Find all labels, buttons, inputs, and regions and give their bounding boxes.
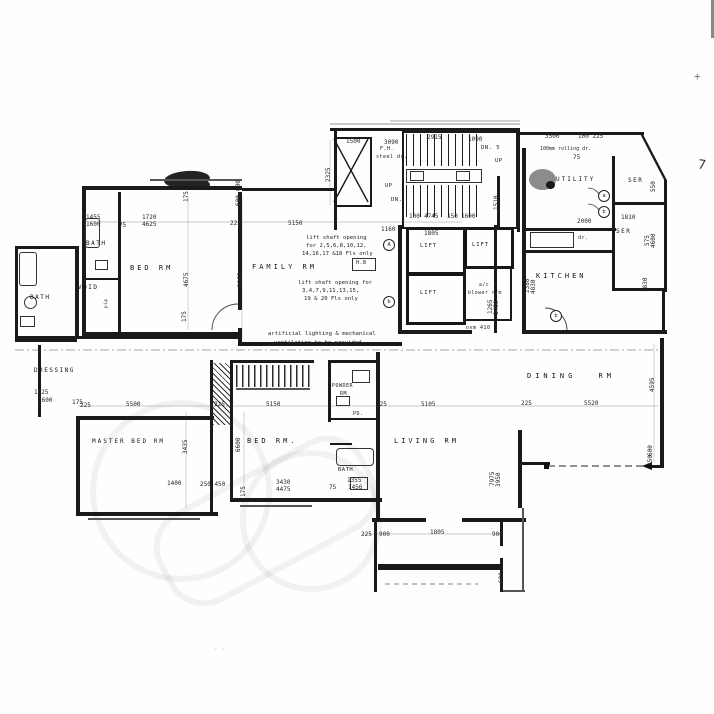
- lift-note-1-line1: lift shaft opening: [306, 235, 367, 241]
- door-tag-b: b: [550, 310, 562, 322]
- room-label-master-bed-rm: MASTER BED RM: [92, 438, 165, 445]
- dimension: 1400: [167, 480, 181, 487]
- dimension: 175: [72, 399, 83, 406]
- wall: [522, 148, 526, 332]
- dimension: 1805: [424, 230, 438, 237]
- wall: [526, 250, 614, 253]
- dimension: 5500: [126, 401, 140, 408]
- room-label-void: VOID: [78, 284, 98, 291]
- wall: [664, 180, 667, 292]
- room-label-ser-lower: SER: [616, 228, 631, 235]
- lift-note-2-line2: 3,4,7,9,11,13,15,: [302, 288, 359, 294]
- dimension: 150: [447, 213, 458, 220]
- dimension: 3955: [237, 273, 244, 287]
- door-tag-b: b: [598, 206, 610, 218]
- dimension: 150: [647, 455, 654, 466]
- basin-fixture: [336, 396, 350, 406]
- door-tag-a: a: [598, 190, 610, 202]
- dimension: 175: [183, 191, 190, 202]
- wall: [15, 246, 18, 342]
- pipe-label: pip: [104, 298, 109, 308]
- dimension: 1720: [142, 214, 156, 221]
- dimension: 1725: [34, 389, 48, 396]
- wall: [522, 228, 616, 231]
- wall: [398, 330, 472, 334]
- room-label-powder-1: POWDER: [332, 383, 353, 389]
- window-line: [88, 518, 200, 520]
- dimension: 3430: [276, 479, 290, 486]
- room-label-ac-1: a/c: [479, 283, 489, 288]
- room-label-bed-rm-1: BED RM: [130, 264, 173, 272]
- wall: [612, 288, 667, 291]
- service-shaft: [334, 137, 372, 207]
- dimension: 1830: [642, 278, 649, 292]
- wall-light: [522, 508, 524, 592]
- stair-up-label: UP: [385, 183, 393, 189]
- room-label-bed-rm-2: BED RM.: [247, 437, 298, 445]
- door-tag-A: A: [383, 239, 395, 251]
- wall: [374, 518, 377, 592]
- room-label-bath-outer: BATH: [30, 294, 50, 301]
- dimension: 4745: [424, 213, 438, 220]
- room-label-bath-inner: BATH: [86, 240, 106, 247]
- wall: [76, 512, 218, 516]
- wardrobe-hatch: [213, 363, 230, 425]
- dimension: 600: [498, 572, 505, 583]
- dimension: 600: [235, 180, 242, 191]
- dimension: 250 450: [200, 481, 225, 488]
- stair-landing-box: [456, 171, 470, 181]
- dimension: 225: [361, 531, 372, 538]
- lift-shaft: [464, 227, 514, 269]
- room-label-dressing: DRESSING: [34, 367, 75, 374]
- wall: [612, 156, 615, 290]
- wall: [328, 418, 378, 420]
- dimension: 600: [235, 195, 242, 206]
- bathtub-fixture: [19, 252, 37, 286]
- lift-shaft: [406, 273, 466, 325]
- vent-note-line1: artificial lighting & mechanical: [268, 331, 376, 337]
- wc-fixture: [95, 260, 108, 270]
- dimension: 1510: [493, 196, 500, 210]
- wall: [230, 498, 382, 502]
- dimension: 5150: [266, 401, 280, 408]
- wall: [118, 192, 121, 334]
- lift-note-2-line3: 19 & 20 Fls only: [304, 296, 358, 302]
- wall: [398, 225, 402, 333]
- lift-note-1-line3: 14,16,17 &18 Fls only: [302, 251, 373, 257]
- wall: [230, 360, 233, 502]
- dimension: 225: [230, 220, 241, 227]
- wall: [76, 416, 80, 516]
- dimension: 2915: [427, 134, 441, 141]
- wc-fixture: [352, 370, 370, 383]
- dimension: 4625: [142, 221, 156, 228]
- dimension: 1600: [38, 397, 52, 404]
- dimension: 175: [181, 311, 188, 322]
- dimension: 1090: [468, 136, 482, 143]
- wall: [15, 339, 77, 342]
- dimension: 5150: [288, 220, 302, 227]
- dimension: 75: [573, 154, 580, 161]
- vent-note-line2: ventilation to be provided: [274, 340, 362, 346]
- wall: [15, 246, 77, 249]
- scan-mark: +: [694, 70, 701, 83]
- dimension: 2325: [325, 168, 332, 182]
- stair-landing-box: [410, 171, 424, 181]
- dimension: 1810: [621, 214, 635, 221]
- dimension: 1500: [346, 138, 360, 145]
- wall: [76, 416, 214, 420]
- dimension: 75: [329, 484, 336, 491]
- fire-hose-label: F.H.: [380, 146, 394, 152]
- room-label-ser-upper: SER: [628, 177, 643, 184]
- room-label-powder-2: RM: [340, 391, 347, 397]
- room-label-dining-rm: DINING RM: [527, 372, 615, 380]
- window-line: [150, 179, 242, 181]
- wall-light: [503, 590, 525, 592]
- dimension: 1160: [381, 226, 395, 233]
- wall: [612, 202, 667, 205]
- dimension: 3090: [384, 139, 398, 146]
- room-label-lift-b: LIFT: [420, 290, 437, 296]
- wall: [328, 360, 331, 422]
- dimension: 1600: [86, 221, 100, 228]
- linework-overlay: [0, 0, 714, 714]
- wall: [494, 225, 497, 333]
- lift-note-1-line2: for 2,5,6,8,10,12,: [306, 243, 367, 249]
- dimension: 3500: [545, 133, 559, 140]
- room-label-kitchen: KITCHEN: [536, 272, 587, 280]
- dimension: 4595: [649, 378, 656, 392]
- room-label-lift-a: LIFT: [420, 243, 437, 249]
- dimension: 3435: [182, 440, 189, 454]
- wall: [462, 518, 526, 522]
- dimension: 5520: [584, 400, 598, 407]
- wall: [376, 352, 380, 522]
- wall: [15, 336, 240, 339]
- window-line: [240, 505, 312, 507]
- dimension: 225: [214, 401, 225, 408]
- dimension: 3950: [495, 473, 502, 487]
- rolling-door-note: 100mm rolling dr.: [540, 146, 591, 152]
- dimension: 4600: [650, 234, 657, 248]
- room-label-lift-c: LIFT: [472, 242, 489, 248]
- dimension: 1805: [430, 529, 444, 536]
- dimension: 1600: [461, 213, 475, 220]
- wall: [518, 430, 522, 508]
- bathtub-fixture: [336, 448, 374, 466]
- wall: [522, 330, 667, 334]
- wall: [328, 360, 380, 363]
- wall: [75, 246, 79, 338]
- dimension: 900: [492, 531, 503, 538]
- wall: [38, 345, 41, 417]
- dimension: 1455: [86, 214, 100, 221]
- ink-smudge: [546, 181, 555, 189]
- wall: [82, 278, 120, 280]
- balcony-slab: [378, 564, 502, 570]
- steel-door-label: steel dr.: [376, 154, 408, 160]
- wardrobe-hatch: [236, 365, 310, 387]
- dimension: 225: [376, 401, 387, 408]
- dimension: 550: [650, 181, 657, 192]
- stair-up-label: UP: [495, 158, 503, 164]
- wall: [242, 188, 334, 191]
- room-label-living-rm: LIVING RM: [394, 437, 459, 445]
- dimension: 2000: [577, 218, 591, 225]
- scan-mark: · ·: [214, 646, 225, 653]
- dimension: 100 225: [578, 133, 603, 140]
- dimension: 900: [379, 531, 390, 538]
- wc-fixture: [20, 316, 35, 327]
- room-label-family-rm: FAMILY RM: [252, 263, 317, 271]
- room-label-bath-lower: BATH: [338, 467, 353, 473]
- wall: [518, 462, 550, 465]
- wall: [82, 186, 86, 336]
- wall: [230, 360, 314, 363]
- door-label: dr.: [578, 235, 589, 241]
- ovm-label: ovm 410: [466, 325, 491, 331]
- dimension: 100: [409, 213, 420, 220]
- wall: [662, 288, 665, 332]
- dimension: 4830: [530, 280, 537, 294]
- stair-dn-label: DN. 5: [481, 145, 500, 151]
- room-label-utility: UTILITY: [556, 176, 595, 183]
- dimension: 1355: [347, 477, 361, 484]
- wardrobe-line: [236, 388, 310, 390]
- hose-bib-label: H.B: [356, 260, 367, 266]
- dimension: 4475: [276, 486, 290, 493]
- pd-label: PD.: [353, 411, 364, 417]
- scan-mark: 7: [697, 158, 707, 174]
- cabinet: [530, 232, 574, 248]
- stair-dn-label: DN.: [391, 197, 402, 203]
- wall: [660, 338, 664, 468]
- wall: [330, 443, 352, 445]
- dimension: 225: [521, 400, 532, 407]
- dimension: 6600: [235, 438, 242, 452]
- wall: [372, 518, 426, 522]
- dimension: 75: [119, 222, 126, 229]
- dimension: 175: [240, 486, 247, 497]
- dimension: 5105: [421, 401, 435, 408]
- dimension: 1400: [493, 301, 500, 315]
- room-label-ac-2: blower r/m: [468, 291, 502, 296]
- wall: [238, 192, 242, 310]
- dimension: 4675: [183, 273, 190, 287]
- dimension: 1456: [348, 484, 362, 491]
- lift-note-2-line1: lift shaft opening for: [298, 280, 372, 286]
- door-tag-b: b: [383, 296, 395, 308]
- floor-plan: BATH BATH VOID BED RM FAMILY RM DRESSING…: [0, 0, 714, 714]
- wall: [82, 186, 242, 190]
